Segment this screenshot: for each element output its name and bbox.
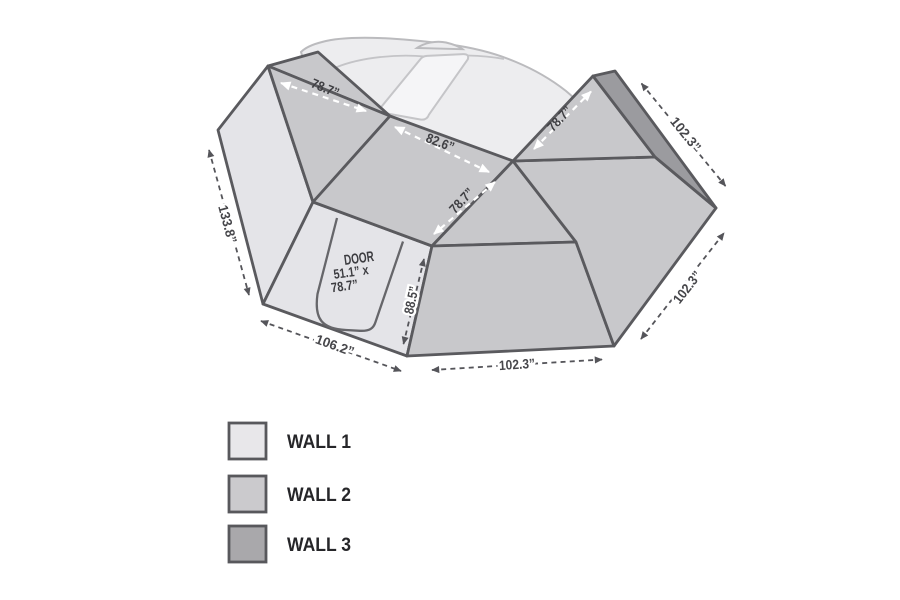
svg-text:WALL 2: WALL 2 [287,484,351,506]
svg-text:WALL 3: WALL 3 [287,534,351,556]
svg-text:102.3”: 102.3” [499,356,536,373]
svg-text:WALL 1: WALL 1 [287,431,351,453]
